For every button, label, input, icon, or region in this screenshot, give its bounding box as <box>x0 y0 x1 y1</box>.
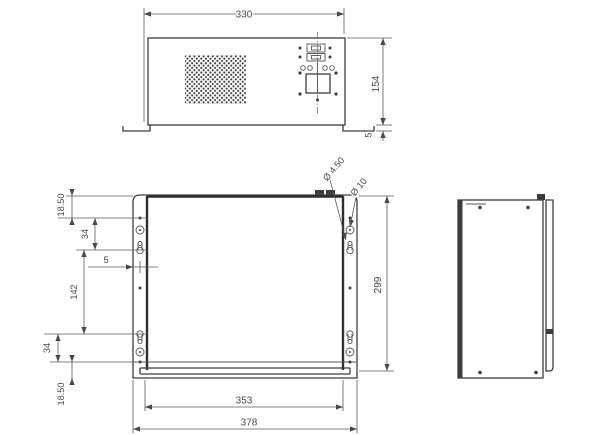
mounting-holes-left <box>136 217 144 364</box>
dimension-rear-height: 299 <box>359 196 394 371</box>
drawing-canvas: 330 154 5 <box>0 0 604 435</box>
dim-rear-flange-width: 5 <box>103 255 108 265</box>
dim-rear-bottom-offset: 18.50 <box>56 383 66 406</box>
dim-rear-top-offset: 18.50 <box>56 194 66 217</box>
technical-drawing: 330 154 5 <box>0 0 604 435</box>
dimension-rear-widths: 353 378 <box>133 380 357 433</box>
rear-tab <box>537 194 545 200</box>
keyhole-slot <box>347 331 353 344</box>
screw-hole <box>139 287 142 290</box>
keyhole-slot <box>137 242 143 254</box>
front-panel-edge <box>458 200 463 378</box>
dim-rear-overall-width: 378 <box>241 418 258 429</box>
dim-rear-inner-width: 353 <box>236 396 253 407</box>
dimension-front-height: 154 <box>347 38 392 125</box>
screw-dot <box>526 206 530 210</box>
top-tab <box>315 190 324 195</box>
flange-notch <box>546 329 553 334</box>
dim-rear-lower-spacing: 34 <box>42 343 52 353</box>
side-view <box>458 194 553 378</box>
screw-hole <box>349 287 352 290</box>
mounting-foot-left <box>123 125 150 131</box>
callout-slot-diameter: Ø 4.50 <box>321 155 346 183</box>
dimension-front-foot: 5 <box>364 117 393 141</box>
front-view: 330 154 5 <box>123 8 392 141</box>
screw-dot <box>478 371 482 375</box>
terminal-block-connectors <box>299 44 332 61</box>
bottom-flange <box>134 362 356 374</box>
screw-hole <box>349 361 352 364</box>
dim-front-height: 154 <box>371 75 382 92</box>
mounting-foot-right <box>343 125 374 131</box>
rear-panel-view: 18.50 34 142 34 18.50 5 299 <box>42 155 394 433</box>
dim-front-width: 330 <box>236 10 253 21</box>
screw-dot <box>534 371 538 375</box>
power-connector <box>298 71 337 101</box>
dim-rear-height: 299 <box>373 276 384 293</box>
dim-rear-upper-spacing: 34 <box>80 229 90 239</box>
mounting-holes-right <box>346 217 354 364</box>
side-body <box>458 200 543 378</box>
ventilation-grille <box>185 55 246 104</box>
screw-dot <box>478 206 482 210</box>
dim-front-foot: 5 <box>364 132 374 137</box>
keyhole-slot <box>137 331 143 344</box>
keyhole-slot <box>347 242 353 254</box>
screw-hole <box>349 217 352 220</box>
callout-hole-diameter: Ø 10 <box>348 176 368 198</box>
rear-panel-outline <box>133 195 357 378</box>
enclosure-front-body <box>148 38 345 125</box>
round-connectors <box>301 63 335 73</box>
rear-flange-edge <box>546 200 553 371</box>
dim-rear-slot-span: 142 <box>69 284 79 299</box>
